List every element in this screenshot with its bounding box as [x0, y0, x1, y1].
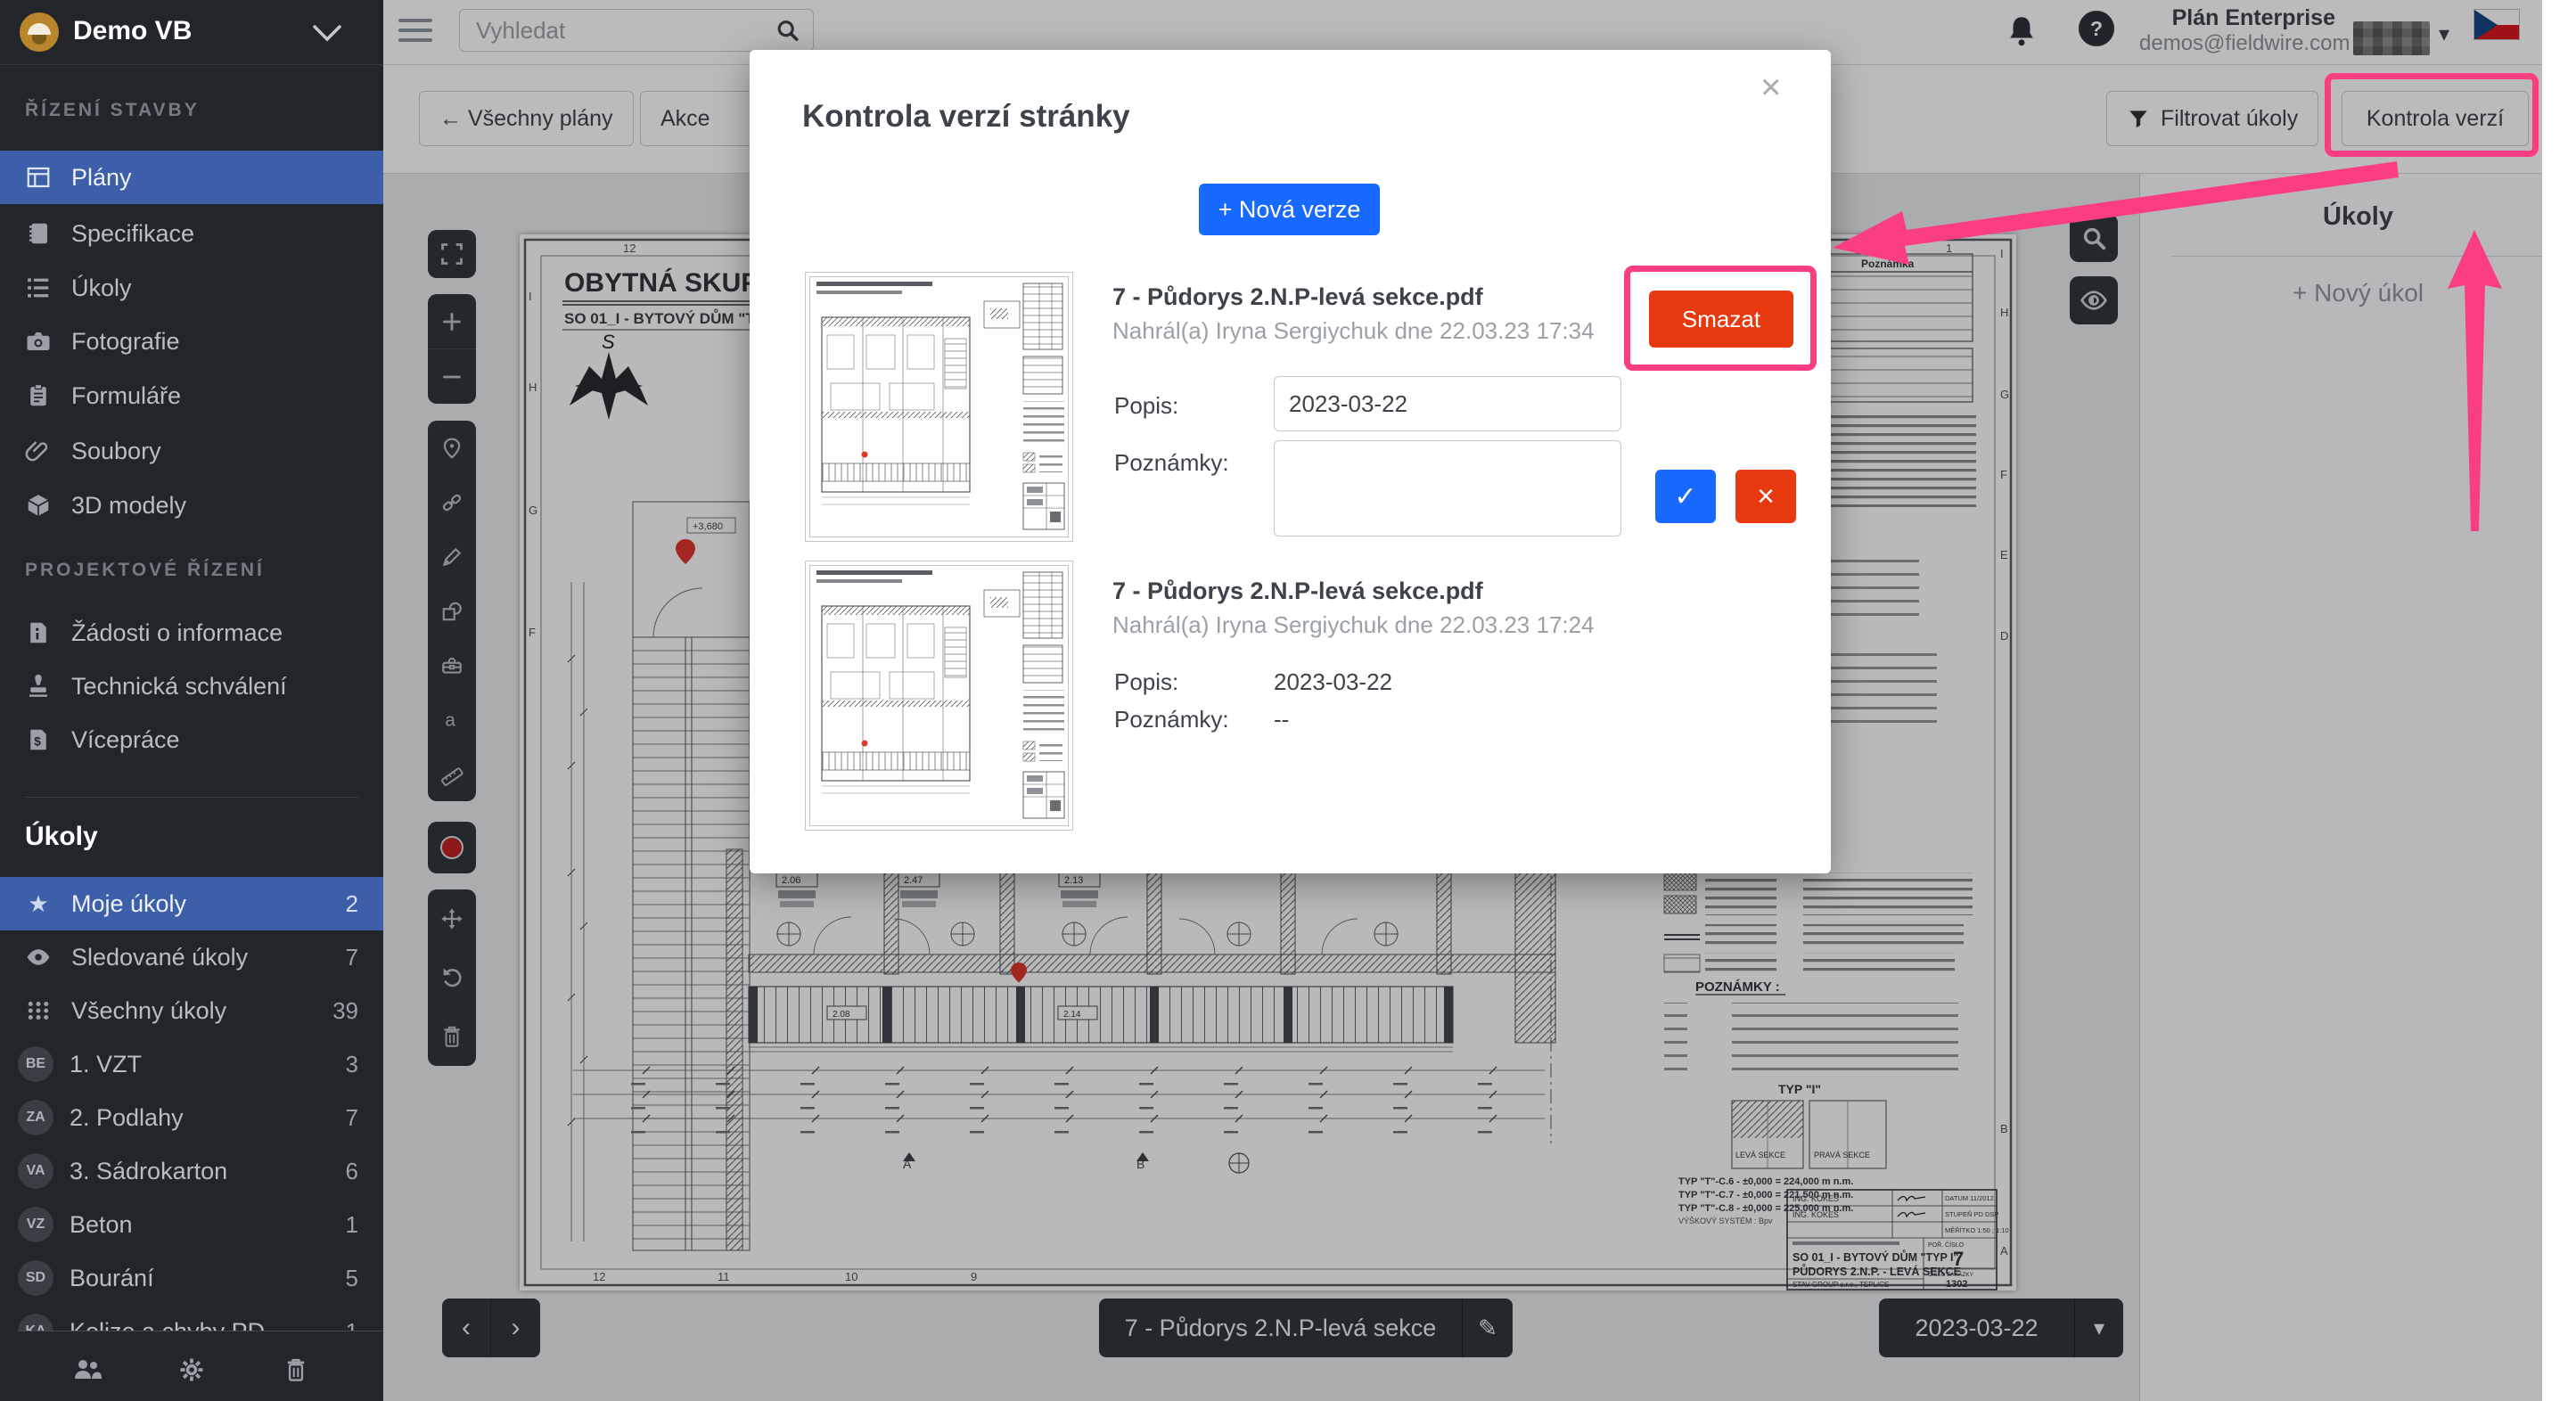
gear-icon[interactable]	[169, 1348, 214, 1392]
sidebar-filter-vsechny[interactable]: Všechny úkoly 39	[0, 984, 383, 1037]
popis-input[interactable]	[1274, 376, 1621, 431]
sidebar-footer-divider	[18, 1331, 383, 1331]
task-count-badge: 2	[346, 890, 358, 918]
sidebar-filter-sledovane[interactable]: Sledované úkoly 7	[0, 930, 383, 984]
sidebar-item-label: Vícepráce	[71, 726, 180, 754]
camera-icon	[25, 328, 52, 355]
category-label: Beton	[70, 1211, 133, 1239]
tasks-section-title: Úkoly	[25, 822, 98, 852]
sidebar-category-kolize-clipped: KA Kolize a chyby PD 1	[0, 1305, 383, 1331]
avatar: SD	[18, 1260, 53, 1296]
paperclip-icon	[25, 438, 52, 464]
sidebar-filter-moje-ukoly[interactable]: ★ Moje úkoly 2	[0, 877, 383, 930]
sidebar-category-vzt[interactable]: BE 1. VZT 3	[0, 1037, 383, 1091]
version-filename: 7 - Půdorys 2.N.P-levá sekce.pdf	[1112, 578, 1483, 605]
sidebar-item-viceprace[interactable]: $ Vícepráce	[0, 713, 383, 766]
category-label: Bourání	[70, 1265, 154, 1292]
task-list-icon	[25, 274, 52, 301]
close-icon[interactable]: ×	[1760, 70, 1781, 105]
popis-label: Popis:	[1114, 668, 1178, 696]
sidebar-item-soubory[interactable]: Soubory	[0, 424, 383, 478]
avatar: VA	[18, 1153, 53, 1189]
sidebar-item-3d-modely[interactable]: 3D modely	[0, 479, 383, 532]
trash-icon[interactable]	[274, 1348, 318, 1392]
sidebar-category-podlahy[interactable]: ZA 2. Podlahy 7	[0, 1091, 383, 1144]
eye-icon	[25, 944, 52, 971]
sidebar-item-label: Úkoly	[71, 274, 132, 302]
sidebar-category-beton[interactable]: VZ Beton 1	[0, 1198, 383, 1251]
poznamky-textarea[interactable]	[1274, 440, 1621, 537]
new-version-button[interactable]: + Nová verze	[1199, 184, 1380, 235]
spec-book-icon	[25, 220, 52, 247]
sidebar-item-label: Soubory	[71, 438, 161, 465]
sidebar-divider	[25, 797, 358, 798]
delete-version-button[interactable]: Smazat	[1649, 291, 1793, 348]
star-icon: ★	[25, 892, 52, 915]
fieldwire-app: Demo VB ŘÍZENÍ STAVBY Plány Specifikace …	[0, 0, 2576, 1401]
popis-label: Popis:	[1114, 392, 1178, 420]
grid-dots-icon	[25, 997, 52, 1024]
check-icon: ✓	[1674, 481, 1696, 512]
project-logo	[20, 12, 59, 52]
task-count-badge: 1	[346, 1211, 358, 1239]
scrollbar-track[interactable]	[2542, 0, 2576, 1401]
plan-thumbnail-image	[809, 565, 1069, 826]
version-control-modal: × Kontrola verzí stránky + Nová verze 7 …	[750, 50, 1831, 873]
version-thumbnail[interactable]	[805, 561, 1073, 831]
sidebar-item-label: Plány	[71, 164, 132, 192]
sidebar-category-bourani[interactable]: SD Bourání 5	[0, 1251, 383, 1305]
task-count-badge: 6	[346, 1158, 358, 1185]
sidebar-category-sadrokarton[interactable]: VA 3. Sádrokarton 6	[0, 1144, 383, 1198]
svg-text:$: $	[34, 734, 41, 748]
cube-icon	[25, 492, 52, 519]
sidebar-item-zadosti[interactable]: Žádosti o informace	[0, 606, 383, 660]
sidebar-item-plany[interactable]: Plány	[0, 151, 383, 204]
popis-value: 2023-03-22	[1274, 668, 1392, 696]
task-count-badge: 5	[346, 1265, 358, 1292]
poznamky-label: Poznámky:	[1114, 706, 1229, 733]
section-label-projektove-rizeni: PROJEKTOVÉ ŘÍZENÍ	[25, 560, 364, 581]
stamp-icon	[25, 673, 52, 700]
chevron-down-icon[interactable]	[312, 23, 342, 43]
people-button[interactable]	[65, 1348, 110, 1392]
plans-icon	[25, 164, 52, 191]
avatar: VZ	[18, 1207, 53, 1242]
filter-label: Sledované úkoly	[71, 944, 248, 971]
project-switcher[interactable]: Demo VB	[0, 0, 383, 65]
poznamky-value: --	[1274, 706, 1289, 733]
sidebar-item-formulare[interactable]: Formuláře	[0, 369, 383, 422]
category-label: 3. Sádrokarton	[70, 1158, 227, 1185]
sidebar-item-fotografie[interactable]: Fotografie	[0, 315, 383, 368]
category-label: 1. VZT	[70, 1051, 142, 1078]
sidebar: Demo VB ŘÍZENÍ STAVBY Plány Specifikace …	[0, 0, 383, 1401]
version-filename: 7 - Půdorys 2.N.P-levá sekce.pdf	[1112, 283, 1483, 311]
sidebar-item-label: 3D modely	[71, 492, 186, 520]
cancel-edit-button[interactable]: ×	[1735, 470, 1796, 523]
task-count-badge: 39	[332, 997, 358, 1025]
sidebar-item-label: Žádosti o informace	[71, 619, 283, 647]
x-icon: ×	[1757, 479, 1775, 514]
sidebar-item-label: Technická schválení	[71, 673, 287, 700]
modal-title: Kontrola verzí stránky	[802, 99, 1130, 135]
sidebar-item-specifikace[interactable]: Specifikace	[0, 207, 383, 260]
project-name: Demo VB	[73, 16, 192, 46]
version-upload-info: Nahrál(a) Iryna Sergiychuk dne 22.03.23 …	[1112, 611, 1595, 639]
avatar: KA	[18, 1314, 53, 1331]
poznamky-label: Poznámky:	[1114, 449, 1229, 477]
sidebar-item-ukoly[interactable]: Úkoly	[0, 261, 383, 315]
sidebar-item-label: Fotografie	[71, 328, 180, 356]
task-count-badge: 7	[346, 944, 358, 971]
avatar: BE	[18, 1046, 53, 1082]
category-label: Kolize a chyby PD	[70, 1318, 265, 1332]
avatar: ZA	[18, 1100, 53, 1135]
rfi-document-icon	[25, 619, 52, 646]
task-count-badge: 1	[346, 1318, 358, 1332]
confirm-edit-button[interactable]: ✓	[1655, 470, 1716, 523]
clipboard-icon	[25, 382, 52, 409]
section-label-rizeni-stavby: ŘÍZENÍ STAVBY	[25, 100, 364, 121]
plan-thumbnail-image	[809, 276, 1069, 537]
task-count-badge: 3	[346, 1051, 358, 1078]
sidebar-item-schvaleni[interactable]: Technická schválení	[0, 660, 383, 713]
sidebar-category-kolize[interactable]: KA Kolize a chyby PD 1	[0, 1305, 383, 1331]
budget-document-icon: $	[25, 726, 52, 753]
filter-label: Moje úkoly	[71, 890, 186, 918]
filter-label: Všechny úkoly	[71, 997, 226, 1025]
category-label: 2. Podlahy	[70, 1104, 184, 1132]
sidebar-item-label: Formuláře	[71, 382, 181, 410]
task-count-badge: 7	[346, 1104, 358, 1132]
sidebar-item-label: Specifikace	[71, 220, 194, 248]
version-thumbnail[interactable]	[805, 272, 1073, 542]
version-upload-info: Nahrál(a) Iryna Sergiychuk dne 22.03.23 …	[1112, 317, 1595, 345]
